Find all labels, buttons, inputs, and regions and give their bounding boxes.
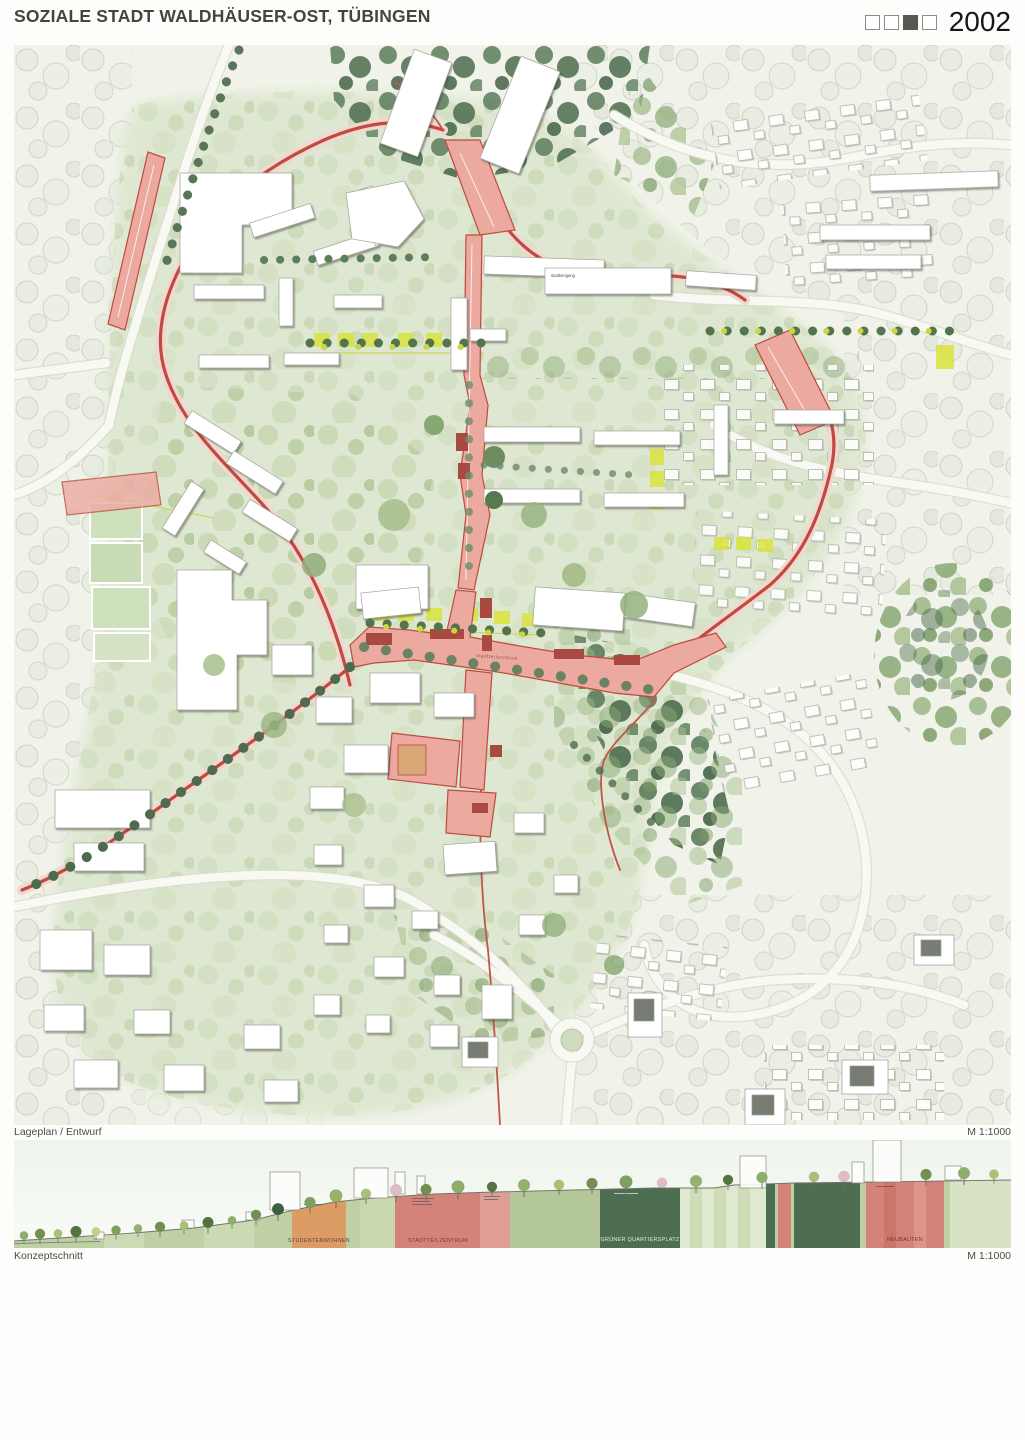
year-label: 2002 <box>949 8 1011 36</box>
label-neubauten: NEUBAUTEN <box>887 1237 923 1243</box>
plan-scale: M 1:1000 <box>967 1126 1011 1138</box>
section-caption-row: Konzeptschnitt M 1:1000 <box>14 1250 1011 1262</box>
section-scale: M 1:1000 <box>967 1250 1011 1262</box>
label-quartiersplatz: GRÜNER QUARTIERSPLATZ <box>601 1236 680 1243</box>
concept-section: STUDENTENWOHNEN STADTTEILZENTRUM GRÜNER … <box>14 1140 1011 1248</box>
section-caption: Konzeptschnitt <box>14 1250 83 1262</box>
phase-box-4 <box>922 15 937 30</box>
site-plan: stadteingang stadtteilzentrum <box>14 45 1011 1125</box>
phase-box-1 <box>865 15 880 30</box>
label-studentenwohnen: STUDENTENWOHNEN <box>288 1238 350 1244</box>
roundabout <box>550 1018 594 1062</box>
label-stadteingang: stadteingang <box>551 273 576 278</box>
header: SOZIALE STADT WALDHÄUSER-OST, TÜBINGEN 2… <box>14 6 1011 44</box>
page-title: SOZIALE STADT WALDHÄUSER-OST, TÜBINGEN <box>14 6 1011 27</box>
plan-caption: Lageplan / Entwurf <box>14 1126 102 1138</box>
concept-section-drawing: STUDENTENWOHNEN STADTTEILZENTRUM GRÜNER … <box>14 1140 1011 1248</box>
label-stadtteilzentrum: STADTTEILZENTRUM <box>408 1238 468 1244</box>
plaza-branch-tip <box>446 790 496 837</box>
phase-box-3-filled <box>903 15 918 30</box>
phase-boxes <box>865 15 937 30</box>
phase-box-2 <box>884 15 899 30</box>
poster-sheet: SOZIALE STADT WALDHÄUSER-OST, TÜBINGEN 2… <box>0 0 1025 1440</box>
plan-caption-row: Lageplan / Entwurf M 1:1000 <box>14 1126 1011 1138</box>
sports-fields <box>90 503 150 661</box>
site-plan-map: stadteingang stadtteilzentrum <box>14 45 1011 1125</box>
phase-year: 2002 <box>865 8 1011 36</box>
